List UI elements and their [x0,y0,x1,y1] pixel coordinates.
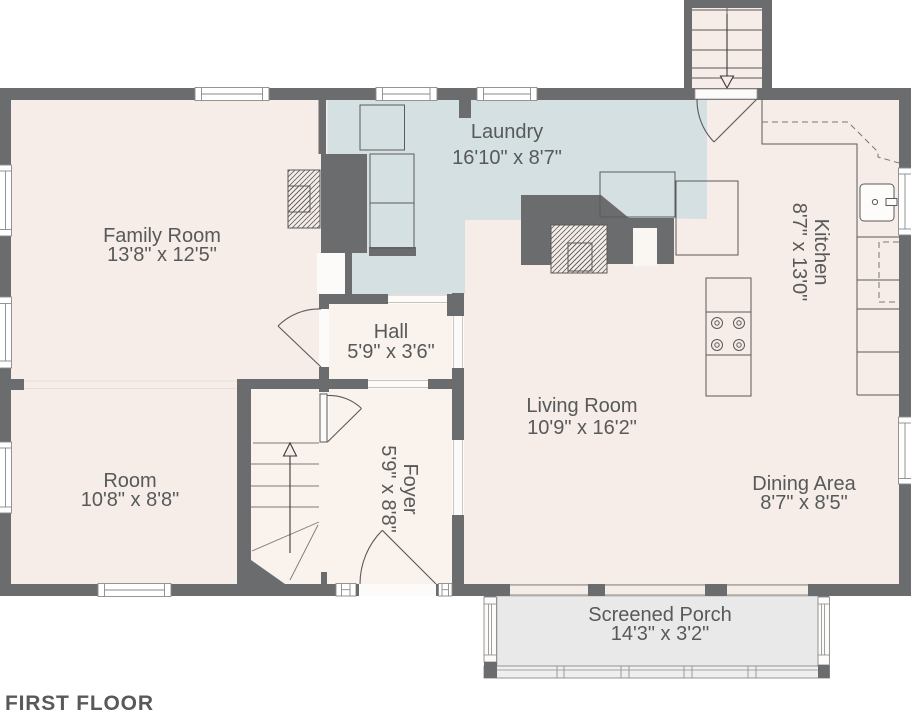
svg-text:Living Room: Living Room [526,395,637,417]
svg-text:16'10" x 8'7": 16'10" x 8'7" [452,147,562,169]
svg-text:5'9" x 8'8": 5'9" x 8'8" [377,445,399,532]
svg-text:Kitchen: Kitchen [810,219,832,286]
svg-text:8'7" x 8'5": 8'7" x 8'5" [760,492,847,514]
svg-text:10'8" x 8'8": 10'8" x 8'8" [81,489,180,511]
svg-text:14'3" x 3'2": 14'3" x 3'2" [611,623,710,645]
svg-text:FIRST FLOOR: FIRST FLOOR [5,692,154,711]
svg-text:13'8" x 12'5": 13'8" x 12'5" [107,244,217,266]
svg-text:5'9" x 3'6": 5'9" x 3'6" [347,341,434,363]
svg-text:10'9" x 16'2": 10'9" x 16'2" [527,417,637,439]
svg-text:8'7" x 13'0": 8'7" x 13'0" [788,203,810,302]
svg-text:Hall: Hall [374,321,408,343]
svg-text:Laundry: Laundry [471,121,543,143]
svg-text:Foyer: Foyer [399,463,421,514]
